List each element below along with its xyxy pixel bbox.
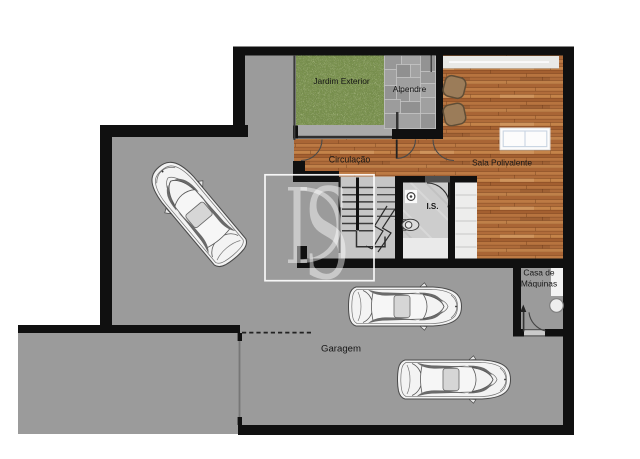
svg-text:Máquinas: Máquinas [521, 279, 557, 289]
svg-text:Alpendre: Alpendre [393, 84, 427, 94]
svg-text:S: S [304, 153, 351, 308]
svg-text:Garagem: Garagem [321, 344, 361, 355]
svg-text:Jardim Exterior: Jardim Exterior [313, 76, 370, 86]
svg-text:I.S.: I.S. [426, 202, 438, 211]
svg-text:Casa de: Casa de [523, 268, 555, 278]
svg-text:Sala Polivalente: Sala Polivalente [472, 158, 532, 168]
